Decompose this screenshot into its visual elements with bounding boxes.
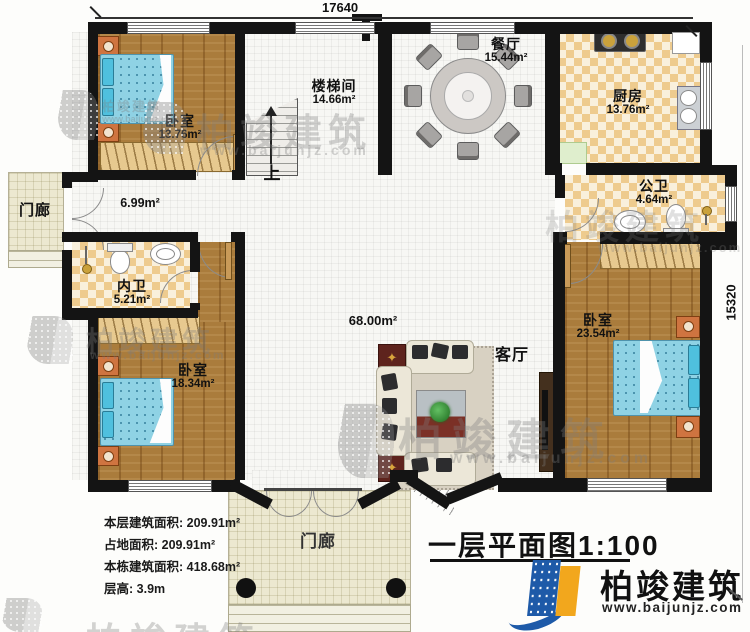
wall — [235, 242, 245, 480]
door-leaf — [225, 242, 232, 280]
room-area: 6.99m² — [100, 196, 180, 210]
logo-building-orange — [555, 566, 580, 616]
watermark-url: www.baijunjz.com — [200, 142, 369, 158]
nightstand — [97, 122, 119, 142]
wall — [88, 170, 196, 180]
stat-line: 本栋建筑面积: 418.68m² — [104, 556, 319, 578]
room-name: 卧室 — [552, 312, 644, 328]
wall — [231, 232, 245, 242]
room-name: 客厅 — [480, 347, 544, 365]
toilet-tank — [107, 243, 133, 252]
sink-bowl — [680, 90, 697, 106]
wall — [725, 165, 737, 186]
corridor-area-label: 6.99m² — [100, 196, 180, 210]
wall — [62, 308, 198, 318]
watermark-url: www.baijunjz.com — [90, 348, 226, 362]
watermark-clipped: 柏竣建筑 — [86, 612, 386, 632]
room-area: 15.44m² — [468, 52, 544, 65]
washbasin-inner — [156, 248, 175, 260]
pillow — [102, 382, 114, 409]
pillow — [102, 58, 114, 86]
wall — [232, 170, 245, 180]
kitchen-doormat — [559, 142, 587, 164]
watermark-url: www.baijunjz.com — [450, 450, 652, 468]
pillow — [688, 378, 700, 408]
toilet — [110, 250, 130, 274]
wall — [545, 163, 562, 175]
wall — [586, 163, 712, 175]
wall — [555, 175, 565, 198]
room-name: 门廊 — [6, 202, 64, 219]
room-area: 68.00m² — [328, 314, 418, 329]
brand-url: www.baijunjz.com — [602, 600, 743, 615]
room-name: 卧室 — [148, 362, 238, 378]
wall — [378, 28, 392, 175]
window — [430, 22, 515, 34]
room-name: 厨房 — [588, 88, 668, 104]
window — [127, 22, 210, 34]
window — [128, 480, 212, 492]
chair — [404, 85, 422, 107]
stat-value: 3.9m — [137, 582, 166, 596]
stat-label: 层高: — [104, 582, 133, 596]
watermark-logo-icon — [27, 316, 73, 364]
room-name: 公卫 — [618, 178, 690, 194]
chair — [514, 85, 532, 107]
brand-logo — [502, 556, 598, 628]
chair — [457, 142, 479, 160]
sofa-cushion — [412, 345, 428, 359]
sink-bowl — [680, 108, 697, 124]
room-label-porch-left: 门廊 — [6, 202, 64, 219]
dimension-width: 17640 — [322, 0, 358, 15]
watermark-url: www.baijunjz.com — [598, 240, 742, 255]
stat-value: 209.91m² — [187, 516, 241, 530]
shower-fixture — [82, 264, 92, 274]
stat-label: 本栋建筑面积: — [104, 560, 183, 574]
stat-line: 本层建筑面积: 209.91m² — [104, 512, 319, 534]
pillow — [688, 345, 700, 375]
room-label-kitchen: 厨房 13.76m² — [588, 88, 668, 117]
nightstand — [676, 416, 700, 438]
sofa-cushion — [452, 345, 468, 359]
room-name: 内卫 — [94, 278, 170, 294]
watermark-logo-icon — [143, 102, 187, 154]
watermark-logo-icon — [2, 598, 42, 632]
wall — [700, 250, 712, 492]
sofa-cushion — [381, 373, 399, 391]
room-label-living: 客厅 — [480, 347, 544, 365]
room-name: 餐厅 — [468, 36, 544, 52]
room-label-bedroom-bottom-left: 卧室 18.34m² — [148, 362, 238, 391]
pillow — [102, 411, 114, 438]
stat-value: 418.68m² — [187, 560, 241, 574]
dimension-line — [95, 17, 693, 19]
wall — [88, 480, 128, 492]
wall — [700, 22, 712, 62]
window — [700, 62, 712, 130]
stats-block: 本层建筑面积: 209.91m² 占地面积: 209.91m² 本栋建筑面积: … — [104, 512, 319, 600]
entry-door-sill — [264, 488, 362, 491]
nightstand — [97, 446, 119, 466]
room-name: 楼梯间 — [292, 78, 376, 94]
window — [725, 186, 737, 222]
column — [386, 578, 406, 598]
nightstand — [676, 316, 700, 338]
stat-label: 本层建筑面积: — [104, 516, 183, 530]
room-area: 5.21m² — [94, 294, 170, 307]
room-label-bedroom-right: 卧室 23.54m² — [552, 312, 644, 341]
shower-arm — [705, 214, 707, 225]
stat-line: 层高: 3.9m — [104, 578, 319, 600]
dimension-line — [742, 45, 743, 603]
room-area: 23.54m² — [552, 328, 644, 341]
floor-plan: 上 ✦ ✦ — [0, 0, 750, 632]
nightstand — [97, 36, 119, 56]
window — [295, 22, 375, 34]
stat-value: 209.91m² — [162, 538, 216, 552]
stair-up-label: 上 — [254, 164, 290, 184]
stat-line: 占地面积: 209.91m² — [104, 534, 319, 556]
dining-table-center — [462, 90, 474, 102]
watermark-name: 柏竣建筑 — [86, 612, 262, 632]
wall — [545, 22, 560, 175]
stove-burner — [624, 33, 640, 49]
wall — [62, 172, 72, 188]
room-label-inner-bath: 内卫 5.21m² — [94, 278, 170, 307]
watermark-logo-icon — [338, 404, 394, 478]
room-area: 18.34m² — [148, 378, 238, 391]
dimension-height: 15320 — [724, 278, 739, 328]
stat-label: 占地面积: — [104, 538, 158, 552]
room-area: 13.76m² — [588, 104, 668, 117]
watermark-logo-icon — [58, 90, 98, 140]
wall — [62, 232, 198, 242]
window — [587, 478, 667, 492]
sofa-cushion — [431, 342, 450, 359]
hall-area-label: 68.00m² — [328, 314, 418, 329]
wall — [498, 478, 587, 492]
room-label-dining: 餐厅 15.44m² — [468, 36, 544, 65]
wall — [190, 242, 200, 272]
porch-left-steps — [8, 250, 64, 268]
stove-burner — [601, 33, 617, 49]
